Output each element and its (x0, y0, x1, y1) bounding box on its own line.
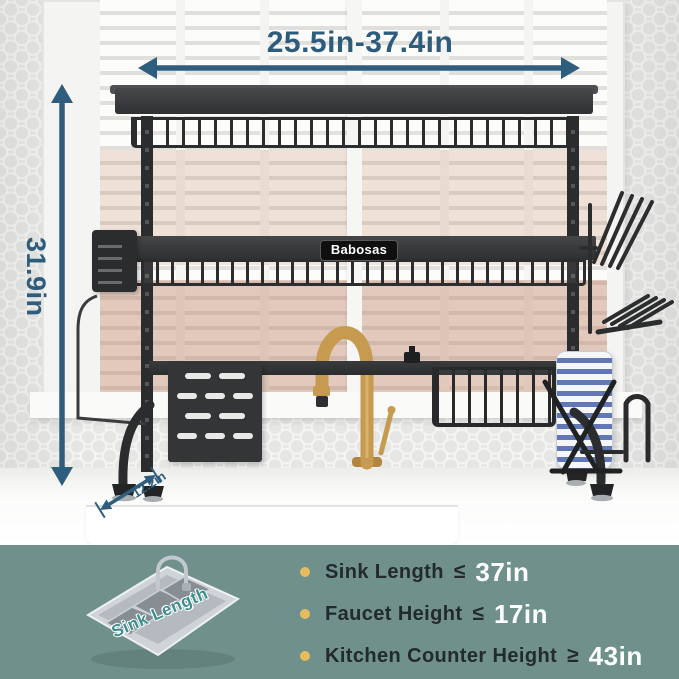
width-dimension-label: 25.5in-37.4in (150, 26, 570, 60)
bullet-icon (300, 609, 310, 619)
spec-value: 37in (475, 557, 529, 588)
spec-row-sink-length: Sink Length ≤ 37in (300, 551, 643, 593)
spec-label: Kitchen Counter Height (325, 645, 557, 668)
spec-label: Faucet Height (325, 603, 462, 626)
spec-row-counter-height: Kitchen Counter Height ≥ 43in (300, 635, 643, 677)
spec-value: 43in (589, 641, 643, 672)
spec-band: Sink Length Sink Length ≤ 37in Faucet He… (0, 545, 679, 679)
spec-operator: ≤ (454, 560, 466, 584)
height-dimension-label: 31.9in (23, 237, 51, 315)
dimension-arrows (0, 0, 679, 545)
kitchen-scene: Babosas (0, 0, 679, 545)
spec-operator: ≥ (567, 644, 579, 668)
bullet-icon (300, 651, 310, 661)
spec-label: Sink Length (325, 561, 444, 584)
spec-operator: ≤ (472, 602, 484, 626)
product-dimension-infographic: Babosas (0, 0, 679, 679)
spec-row-faucet-height: Faucet Height ≤ 17in (300, 593, 643, 635)
spec-value: 17in (494, 599, 548, 630)
spec-list: Sink Length ≤ 37in Faucet Height ≤ 17in … (300, 551, 643, 677)
bullet-icon (300, 567, 310, 577)
